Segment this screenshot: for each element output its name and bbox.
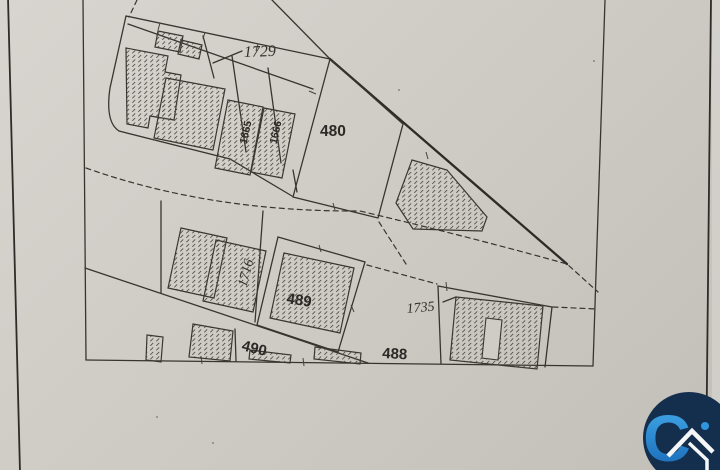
boundary-right <box>593 0 605 366</box>
roof-dot <box>701 422 709 430</box>
dashed-top-left <box>129 0 137 17</box>
building-1735-courtyard <box>482 318 502 360</box>
paper-speck <box>156 416 158 418</box>
parcel-label-488: 488 <box>382 345 408 363</box>
building-hatched <box>154 78 225 150</box>
parcel-1735-west-boundary <box>438 286 441 364</box>
photo-left-edge-line <box>8 0 20 470</box>
parcel-480-boundary <box>293 59 403 218</box>
survey-tick <box>446 282 447 291</box>
dashed-lower <box>367 265 437 284</box>
parcel-1729-west-boundary <box>109 16 126 131</box>
cadastral-plan-photo: 1729 480 1665 1666 1716 489 490 488 1735… <box>0 0 720 470</box>
logo-letter: C <box>643 401 691 470</box>
survey-tick <box>158 23 160 30</box>
dashed-branch <box>379 222 406 264</box>
company-logo: C <box>643 392 720 470</box>
survey-tick <box>309 91 316 94</box>
building-hatched <box>178 40 202 59</box>
dashed-right <box>553 307 597 309</box>
survey-tick <box>426 152 428 159</box>
building-hatched <box>189 324 233 361</box>
parcel-1735-leader-line <box>443 297 456 302</box>
cadastral-map: 1729 480 1665 1666 1716 489 490 488 1735… <box>0 0 720 470</box>
subdivision-line <box>203 36 214 78</box>
survey-tick <box>303 358 304 366</box>
parcel-1729-leader-line <box>213 51 242 63</box>
building-hatched <box>396 160 487 231</box>
parcel-label-1729: 1729 <box>244 43 277 61</box>
boundary-left <box>83 0 86 360</box>
boundary-apex-north <box>272 0 330 59</box>
parcel-label-480: 480 <box>320 123 346 140</box>
building-hatched <box>314 347 361 364</box>
building-hatched <box>146 335 163 362</box>
hatched-buildings <box>126 31 543 369</box>
paper-speck <box>398 89 400 91</box>
parcel-label-1735: 1735 <box>406 300 435 317</box>
paper-speck <box>593 60 595 62</box>
parcel-1735-east-boundary <box>545 307 552 367</box>
parcel-label-490: 490 <box>240 337 268 360</box>
subdivision-line <box>235 329 236 361</box>
boundary-diagonal <box>330 59 567 264</box>
paper-speck <box>212 442 214 444</box>
